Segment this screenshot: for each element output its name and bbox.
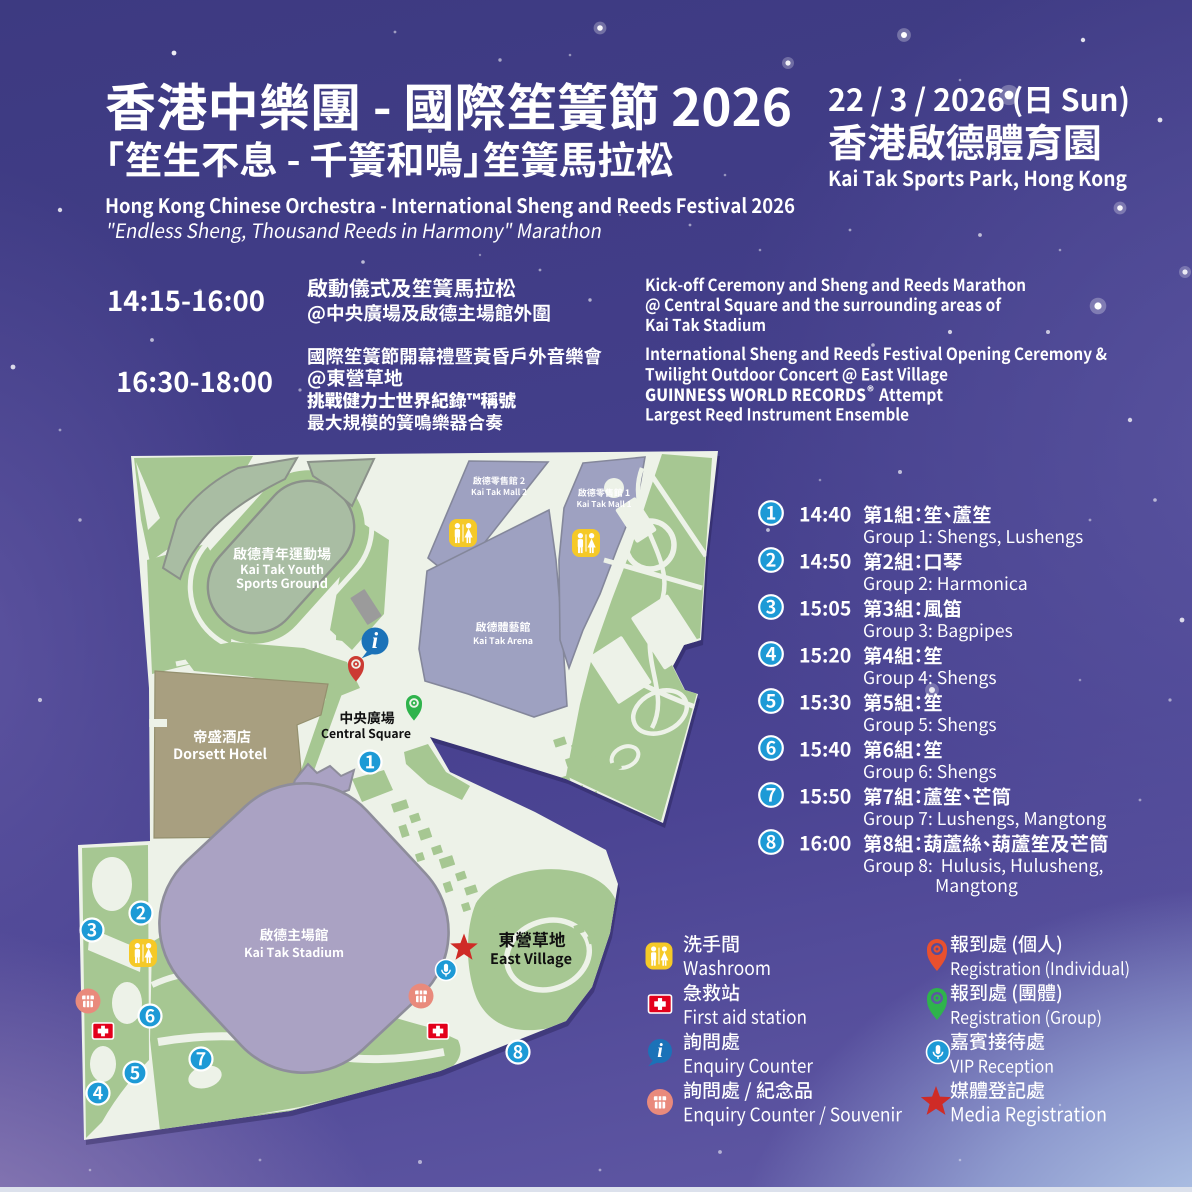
svg-text:i: i [372,628,379,653]
svg-text:i: i [657,1040,663,1062]
